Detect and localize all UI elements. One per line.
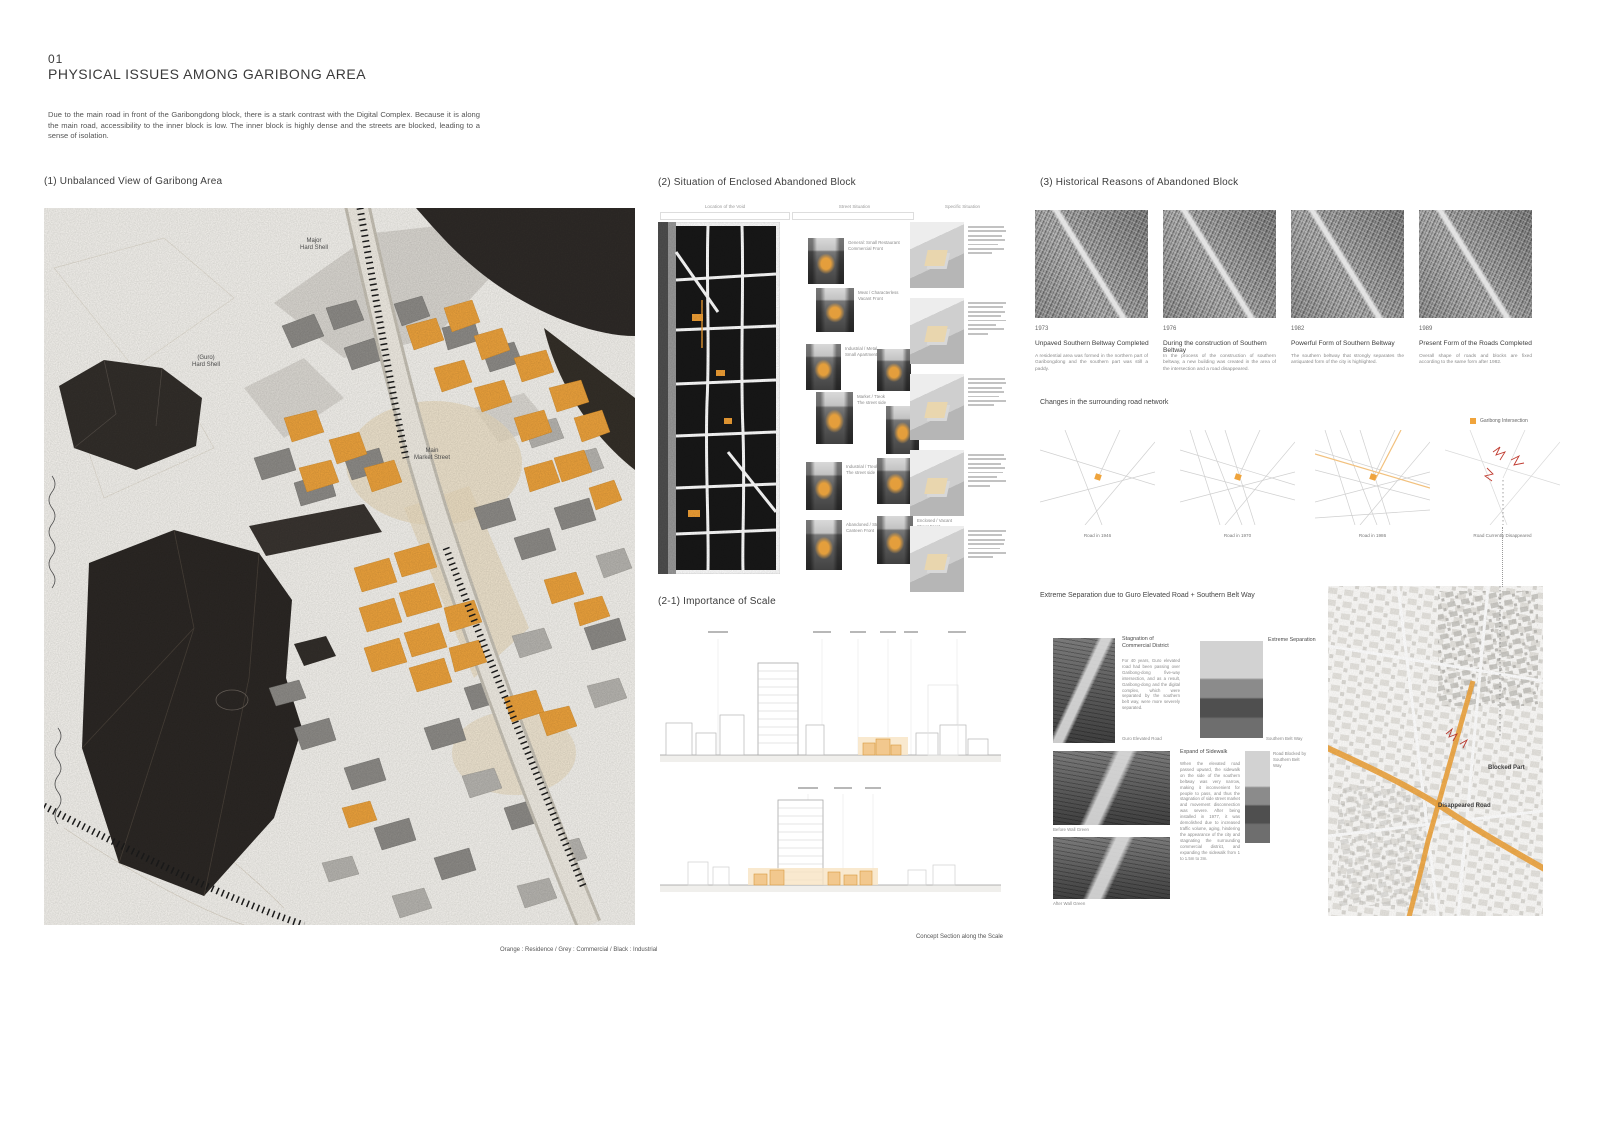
block1-text: For 40 years, Guro elevated road had bee… [1122,658,1180,711]
connector-dotted-line [1502,527,1503,587]
concept-section-top [658,625,1003,775]
before-wall-green-photo [1053,751,1170,825]
aerial-photo-1973 [1035,210,1148,318]
panel2-col3-header: Specific Situation [920,204,1005,209]
guro-elevated-road-photo [1053,638,1115,743]
road-map-disappeared [1445,430,1560,525]
photo1-caption: Guro Elevated Road [1122,736,1162,741]
aerial-photo-1976 [1163,210,1276,318]
axonometric-map [44,208,635,925]
photo5-label: Road Blocked by Southern Belt Way [1273,751,1307,768]
history-title: Present Form of the Roads Completed [1419,340,1537,347]
map-label-guro-hard-shell: (Guro)Hard Shell [178,355,234,369]
alley-photo [806,462,842,510]
aerial-photo-1982 [1291,210,1404,318]
blocked-part-map [1328,586,1543,916]
alley-photo [806,520,842,570]
road-map-1946 [1040,430,1155,525]
history-year: 1976 [1163,326,1176,332]
alley-photo-label: Market / TteokThe street side [857,394,913,406]
separation-title: Extreme Separation due to Guro Elevated … [1040,592,1255,599]
road-blocked-photo [1245,751,1270,843]
history-text: In the process of the construction of so… [1163,354,1276,373]
block2-text: When the elevated road passed upward, th… [1180,761,1240,861]
history-year: 1989 [1419,326,1432,332]
alley-photo [816,392,853,444]
alley-photo [806,344,841,390]
southern-belt-way-photo [1200,641,1263,738]
alley-photo [808,238,844,284]
photo2-label: Extreme Separation [1268,637,1323,644]
alley-photo-label: Meat / CharacterlessVacant Front [858,290,914,302]
axon-note [968,378,1006,409]
network-title: Changes in the surrounding road network [1040,399,1168,406]
road-map-caption: Road in 1986 [1315,533,1430,538]
history-year: 1973 [1035,326,1048,332]
axon-diagram [910,374,964,440]
panel2-col1-header: Location of the Void [660,204,790,209]
history-text: The southern beltway that strongly separ… [1291,354,1404,367]
axon-diagram [910,526,964,592]
road-map-1986 [1315,430,1430,525]
legend-label: Garibong Intersection [1480,418,1528,424]
history-title: Powerful Form of Southern Beltway [1291,340,1409,347]
alley-photo [877,349,911,391]
page-number: 01 [48,52,63,66]
history-text: A residential area was formed in the nor… [1035,354,1148,373]
panel2-col1-box [660,212,790,220]
history-title: Unpaved Southern Beltway Completed [1035,340,1153,347]
panel1-legend-caption: Orange : Residence / Grey : Commercial /… [500,947,657,953]
road-map-caption: Road in 1946 [1040,533,1155,538]
alley-photo [816,288,854,332]
map-label-major-hard-shell: MajorHard Shell [284,238,344,252]
axon-diagram [910,222,964,288]
figure-ground-map [658,222,780,574]
alley-photo-label: General: Small RestaurantCommercial Fron… [848,240,904,252]
block1-title: Stagnation of Commercial District [1122,636,1182,650]
panel1-title: (1) Unbalanced View of Garibong Area [44,176,222,187]
concept-section-bottom [658,782,1003,922]
panel3-title: (3) Historical Reasons of Abandoned Bloc… [1040,177,1238,188]
axon-diagram [910,450,964,516]
history-title: During the construction of Southern Belt… [1163,340,1281,354]
panel2-col2-box [792,212,914,220]
aerial-photo-1989 [1419,210,1532,318]
alley-photo [877,516,913,564]
axon-note [968,226,1006,257]
panel21-caption: Concept Section along the Scale [898,934,1003,940]
road-map-1970 [1180,430,1295,525]
axon-diagram [910,298,964,364]
intro-paragraph: Due to the main road in front of the Gar… [48,110,480,142]
photo3-caption: Before Wall Green [1053,827,1089,832]
panel21-title: (2-1) Importance of Scale [658,596,776,607]
alley-photo [877,458,914,504]
photo4-caption: After Wall Green [1053,901,1085,906]
photo2-caption: Southern Belt Way [1266,736,1302,741]
presentation-board: 01 PHYSICAL ISSUES AMONG GARIBONG AREA D… [0,0,1600,1132]
page-title: PHYSICAL ISSUES AMONG GARIBONG AREA [48,66,366,82]
legend-swatch [1470,418,1476,424]
axon-note [968,454,1006,489]
panel2-col2-header: Street Situation [792,204,917,209]
disappeared-road-label: Disappeared Road [1438,803,1491,809]
axon-note [968,302,1006,337]
panel2-title: (2) Situation of Enclosed Abandoned Bloc… [658,177,856,188]
blocked-part-label: Blocked Part [1488,765,1525,771]
after-wall-green-photo [1053,837,1170,899]
road-map-caption: Road in 1970 [1180,533,1295,538]
block2-title: Expand of Sidewalk [1180,749,1240,756]
history-text: Overall shape of roads and blocks are fi… [1419,354,1532,367]
axon-note [968,530,1006,561]
history-year: 1982 [1291,326,1304,332]
map-label-main-market-street: MainMarket Street [402,448,462,462]
